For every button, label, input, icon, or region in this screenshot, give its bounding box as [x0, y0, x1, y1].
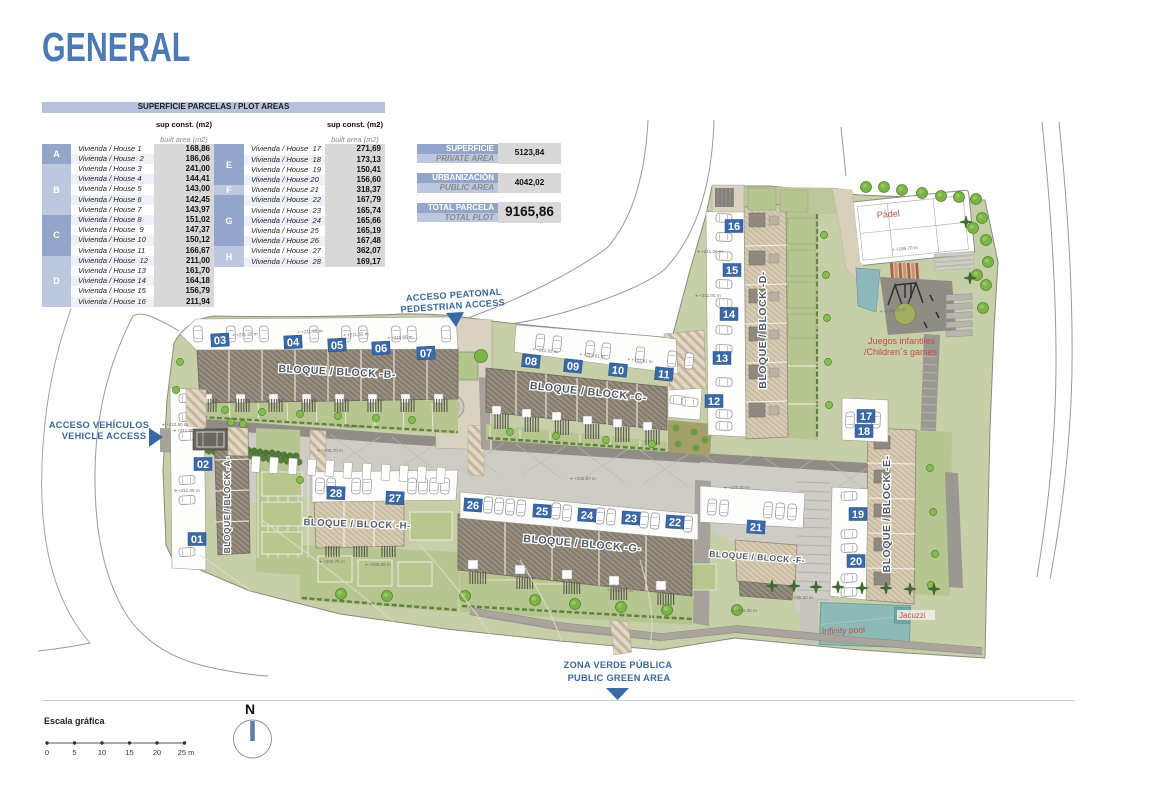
svg-text:07: 07 [420, 348, 433, 361]
svg-text:28: 28 [330, 488, 343, 500]
svg-text:BLOQUE / BLOCK -A-: BLOQUE / BLOCK -A- [222, 457, 232, 554]
svg-text:⌖ +200.00 m: ⌖ +200.00 m [724, 485, 750, 490]
svg-text:Pádel: Pádel [876, 208, 900, 220]
svg-text:⌖ +195.50 m: ⌖ +195.50 m [787, 595, 813, 600]
svg-text:ZONA VERDE PÚBLICA: ZONA VERDE PÚBLICA [564, 659, 673, 670]
svg-text:⌖ +212.50 m: ⌖ +212.50 m [162, 422, 188, 427]
svg-text:10: 10 [611, 364, 624, 377]
svg-text:13: 13 [716, 353, 728, 365]
svg-text:⌖ +211.00 m: ⌖ +211.00 m [697, 249, 723, 254]
svg-text:22: 22 [668, 517, 681, 530]
svg-text:09: 09 [566, 360, 579, 373]
svg-text:02: 02 [197, 459, 209, 471]
svg-text:Jacuzzi: Jacuzzi [899, 611, 926, 620]
svg-text:⌖ +211.00 m: ⌖ +211.00 m [695, 293, 721, 298]
svg-text:21: 21 [749, 522, 762, 535]
svg-text:17: 17 [860, 411, 872, 423]
svg-text:ACCESO VEHÍCULOS: ACCESO VEHÍCULOS [49, 419, 149, 430]
svg-text:BLOQUE / BLOCK -D-: BLOQUE / BLOCK -D- [757, 271, 769, 389]
svg-text:25: 25 [535, 506, 548, 519]
svg-text:18: 18 [858, 426, 870, 438]
svg-text:⌖ +205.70 m: ⌖ +205.70 m [317, 448, 343, 453]
svg-text:BLOQUE / BLOCK -E-: BLOQUE / BLOCK -E- [881, 456, 893, 573]
svg-text:⌖ +196.97 m: ⌖ +196.97 m [607, 588, 633, 594]
svg-text:⌖ +204.75 m: ⌖ +204.75 m [319, 559, 345, 564]
svg-text:PUBLIC GREEN AREA: PUBLIC GREEN AREA [568, 673, 671, 683]
svg-text:05: 05 [331, 340, 344, 353]
svg-text:27: 27 [389, 493, 402, 505]
svg-text:16: 16 [728, 221, 740, 233]
svg-text:06: 06 [375, 343, 388, 356]
svg-text:01: 01 [191, 534, 203, 546]
svg-text:19: 19 [852, 509, 864, 521]
svg-text:24: 24 [580, 510, 594, 523]
svg-text:23: 23 [624, 513, 637, 526]
svg-text:14: 14 [723, 309, 736, 321]
svg-text:20: 20 [850, 556, 862, 568]
svg-text:⌖ +200.05 m: ⌖ +200.05 m [731, 608, 757, 613]
svg-text:15: 15 [726, 265, 738, 277]
svg-text:11: 11 [657, 368, 670, 381]
svg-text:⌖ +205.55 m: ⌖ +205.55 m [365, 562, 391, 567]
svg-text:⌖ +211.00 m: ⌖ +211.00 m [174, 488, 200, 493]
svg-text:12: 12 [708, 396, 720, 408]
svg-text:⌖ +205.70 m: ⌖ +205.70 m [339, 424, 365, 429]
svg-text:⌖ +202.87 m: ⌖ +202.87 m [570, 476, 596, 481]
svg-text:03: 03 [214, 335, 227, 348]
svg-text:/Children´s games: /Children´s games [864, 347, 938, 357]
svg-text:Juegos infantiles: Juegos infantiles [868, 336, 936, 346]
svg-text:26: 26 [466, 500, 479, 513]
svg-text:⌖ +211.00 m: ⌖ +211.00 m [173, 428, 199, 433]
svg-text:08: 08 [524, 355, 537, 368]
svg-text:VEHICLE ACCESS: VEHICLE ACCESS [62, 431, 147, 441]
svg-text:04: 04 [287, 337, 301, 350]
